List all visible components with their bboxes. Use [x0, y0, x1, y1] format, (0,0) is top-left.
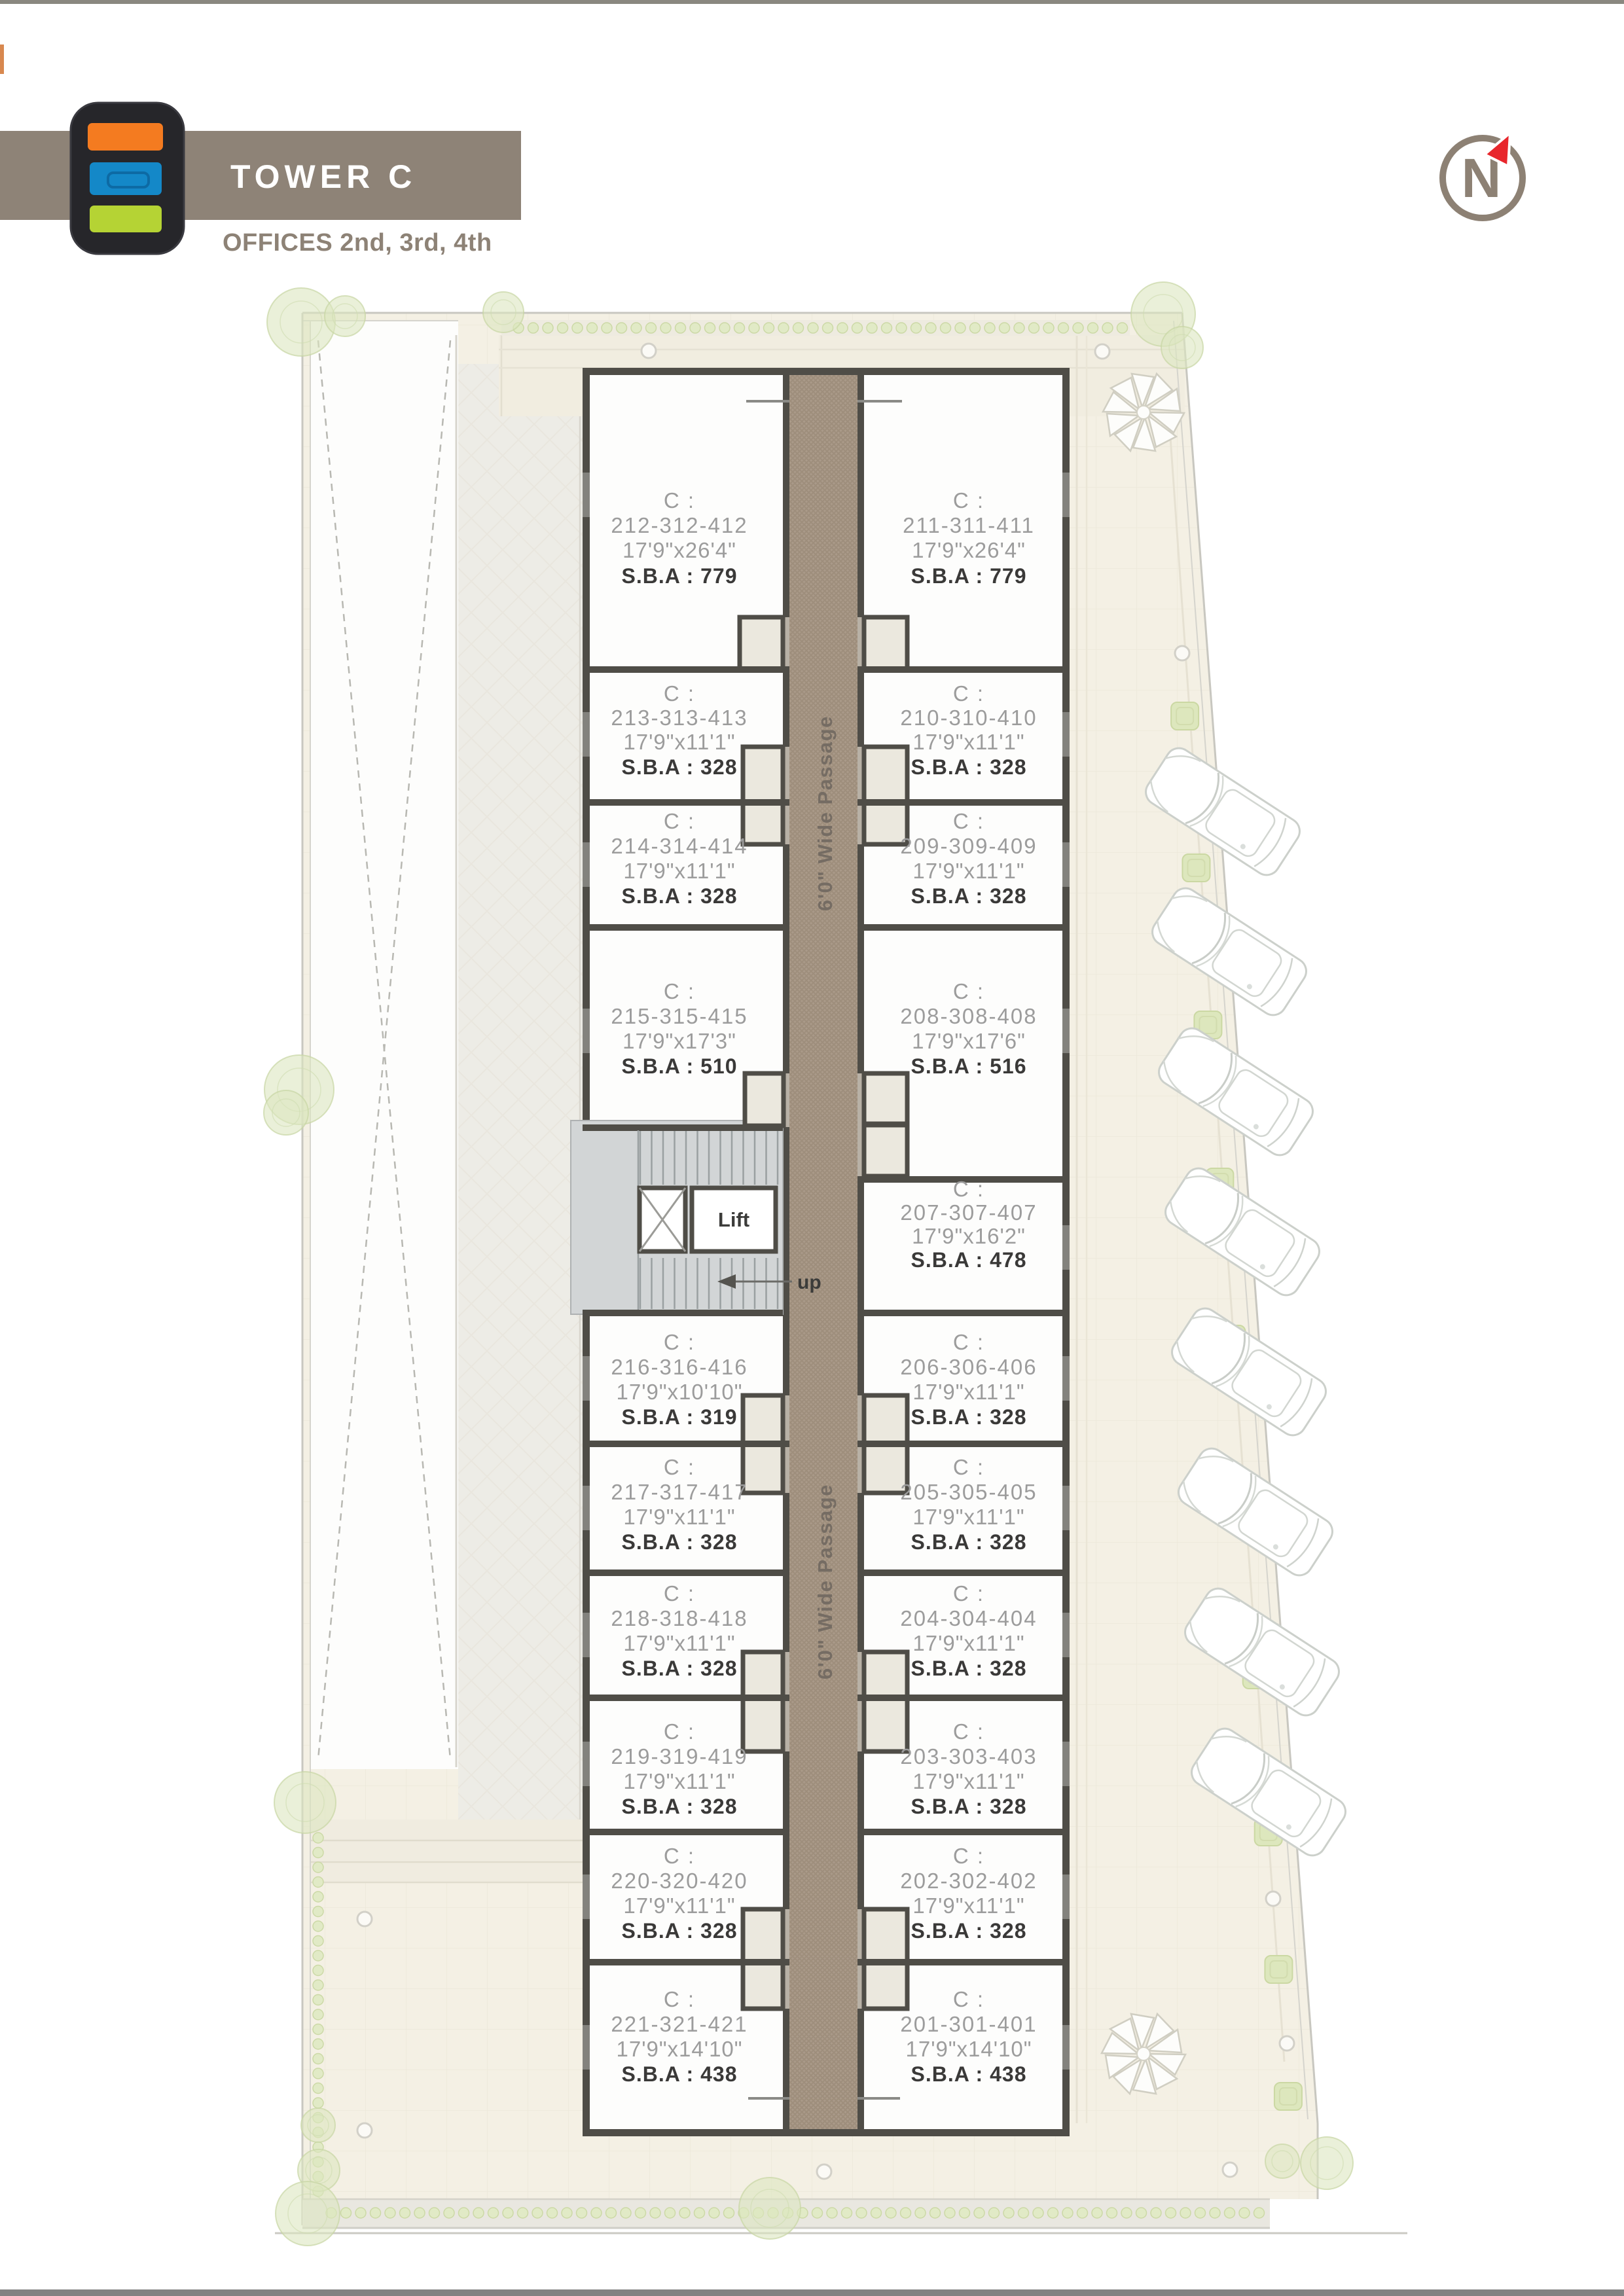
- svg-text:S.B.A : 438: S.B.A : 438: [622, 2062, 738, 2086]
- svg-text:S.B.A : 328: S.B.A : 328: [622, 884, 738, 908]
- svg-text:216-316-416: 216-316-416: [611, 1355, 748, 1379]
- svg-text:17'9"x10'10": 17'9"x10'10": [616, 1380, 742, 1404]
- svg-text:17'9"x11'1": 17'9"x11'1": [623, 730, 735, 754]
- svg-text:C :: C :: [664, 488, 695, 512]
- svg-text:S.B.A : 328: S.B.A : 328: [622, 1530, 738, 1554]
- svg-text:S.B.A : 328: S.B.A : 328: [911, 1657, 1027, 1680]
- svg-text:C :: C :: [664, 1455, 695, 1479]
- svg-text:17'9"x11'1": 17'9"x11'1": [912, 1893, 1024, 1918]
- svg-text:S.B.A : 328: S.B.A : 328: [911, 884, 1027, 908]
- svg-text:17'9"x16'2": 17'9"x16'2": [912, 1224, 1026, 1248]
- svg-text:C :: C :: [664, 681, 695, 706]
- svg-text:17'9"x11'1": 17'9"x11'1": [912, 1505, 1024, 1529]
- svg-text:C :: C :: [664, 1719, 695, 1744]
- svg-text:C :: C :: [664, 1330, 695, 1354]
- svg-text:210-310-410: 210-310-410: [900, 706, 1037, 730]
- svg-text:S.B.A : 328: S.B.A : 328: [911, 755, 1027, 779]
- svg-text:17'9"x11'1": 17'9"x11'1": [912, 1769, 1024, 1793]
- svg-text:C :: C :: [664, 1987, 695, 2011]
- svg-text:S.B.A : 319: S.B.A : 319: [622, 1405, 738, 1429]
- svg-text:S.B.A : 328: S.B.A : 328: [911, 1795, 1027, 1818]
- svg-text:17'9"x26'4": 17'9"x26'4": [912, 538, 1026, 562]
- svg-text:S.B.A : 779: S.B.A : 779: [911, 564, 1027, 588]
- svg-text:218-318-418: 218-318-418: [611, 1606, 748, 1630]
- svg-text:S.B.A : 328: S.B.A : 328: [911, 1530, 1027, 1554]
- svg-text:17'9"x11'1": 17'9"x11'1": [912, 1380, 1024, 1404]
- svg-text:C :: C :: [953, 809, 984, 833]
- svg-text:17'9"x11'1": 17'9"x11'1": [623, 1893, 735, 1918]
- svg-text:212-312-412: 212-312-412: [611, 513, 748, 537]
- svg-text:C :: C :: [953, 488, 984, 512]
- svg-text:17'9"x17'3": 17'9"x17'3": [623, 1029, 736, 1053]
- svg-text:17'9"x11'1": 17'9"x11'1": [623, 1505, 735, 1529]
- svg-text:C :: C :: [953, 1581, 984, 1605]
- svg-text:213-313-413: 213-313-413: [611, 706, 748, 730]
- svg-text:208-308-408: 208-308-408: [900, 1004, 1037, 1028]
- svg-text:201-301-401: 201-301-401: [900, 2012, 1037, 2036]
- svg-text:217-317-417: 217-317-417: [611, 1480, 748, 1504]
- svg-text:S.B.A : 328: S.B.A : 328: [911, 1919, 1027, 1943]
- svg-text:C :: C :: [953, 979, 984, 1003]
- svg-text:S.B.A : 478: S.B.A : 478: [911, 1248, 1027, 1272]
- svg-text:220-320-420: 220-320-420: [611, 1869, 748, 1893]
- svg-text:215-315-415: 215-315-415: [611, 1004, 748, 1028]
- svg-text:S.B.A : 779: S.B.A : 779: [622, 564, 738, 588]
- svg-text:202-302-402: 202-302-402: [900, 1869, 1037, 1893]
- svg-text:17'9"x11'1": 17'9"x11'1": [623, 1631, 735, 1655]
- svg-text:206-306-406: 206-306-406: [900, 1355, 1037, 1379]
- svg-text:S.B.A : 328: S.B.A : 328: [622, 755, 738, 779]
- svg-text:C :: C :: [953, 1177, 984, 1201]
- svg-text:209-309-409: 209-309-409: [900, 834, 1037, 858]
- svg-text:203-303-403: 203-303-403: [900, 1744, 1037, 1768]
- svg-text:S.B.A : 328: S.B.A : 328: [911, 1405, 1027, 1429]
- svg-text:C :: C :: [664, 809, 695, 833]
- svg-text:211-311-411: 211-311-411: [903, 513, 1035, 537]
- svg-text:204-304-404: 204-304-404: [900, 1606, 1037, 1630]
- svg-text:C :: C :: [953, 1455, 984, 1479]
- svg-text:6'0" Wide Passage: 6'0" Wide Passage: [814, 715, 837, 911]
- svg-text:17'9"x11'1": 17'9"x11'1": [912, 859, 1024, 883]
- svg-text:C :: C :: [953, 1330, 984, 1354]
- svg-text:S.B.A : 328: S.B.A : 328: [622, 1657, 738, 1680]
- svg-text:214-314-414: 214-314-414: [611, 834, 748, 858]
- svg-text:C :: C :: [953, 1844, 984, 1868]
- svg-text:219-319-419: 219-319-419: [611, 1744, 748, 1768]
- svg-text:C :: C :: [953, 681, 984, 706]
- svg-text:up: up: [797, 1272, 821, 1293]
- svg-text:17'9"x11'1": 17'9"x11'1": [912, 730, 1024, 754]
- svg-text:C :: C :: [664, 1844, 695, 1868]
- svg-text:S.B.A : 438: S.B.A : 438: [911, 2062, 1027, 2086]
- svg-text:Lift: Lift: [718, 1208, 749, 1231]
- svg-text:6'0" Wide Passage: 6'0" Wide Passage: [814, 1484, 837, 1679]
- svg-text:C :: C :: [953, 1719, 984, 1744]
- svg-text:S.B.A : 328: S.B.A : 328: [622, 1795, 738, 1818]
- svg-text:207-307-407: 207-307-407: [900, 1200, 1037, 1225]
- svg-text:17'9"x17'6": 17'9"x17'6": [912, 1029, 1026, 1053]
- svg-text:17'9"x11'1": 17'9"x11'1": [623, 859, 735, 883]
- svg-text:17'9"x26'4": 17'9"x26'4": [623, 538, 736, 562]
- svg-text:17'9"x11'1": 17'9"x11'1": [912, 1631, 1024, 1655]
- svg-text:S.B.A : 328: S.B.A : 328: [622, 1919, 738, 1943]
- svg-text:17'9"x11'1": 17'9"x11'1": [623, 1769, 735, 1793]
- svg-text:205-305-405: 205-305-405: [900, 1480, 1037, 1504]
- svg-text:17'9"x14'10": 17'9"x14'10": [905, 2037, 1032, 2061]
- svg-text:TOWER C: TOWER C: [230, 158, 416, 195]
- svg-text:S.B.A : 516: S.B.A : 516: [911, 1054, 1027, 1078]
- svg-text:C :: C :: [664, 1581, 695, 1605]
- svg-text:17'9"x14'10": 17'9"x14'10": [616, 2037, 742, 2061]
- svg-text:C :: C :: [953, 1987, 984, 2011]
- svg-text:OFFICES 2nd, 3rd, 4th: OFFICES 2nd, 3rd, 4th: [223, 229, 492, 257]
- svg-text:C :: C :: [664, 979, 695, 1003]
- svg-text:S.B.A : 510: S.B.A : 510: [622, 1054, 738, 1078]
- svg-text:221-321-421: 221-321-421: [611, 2012, 748, 2036]
